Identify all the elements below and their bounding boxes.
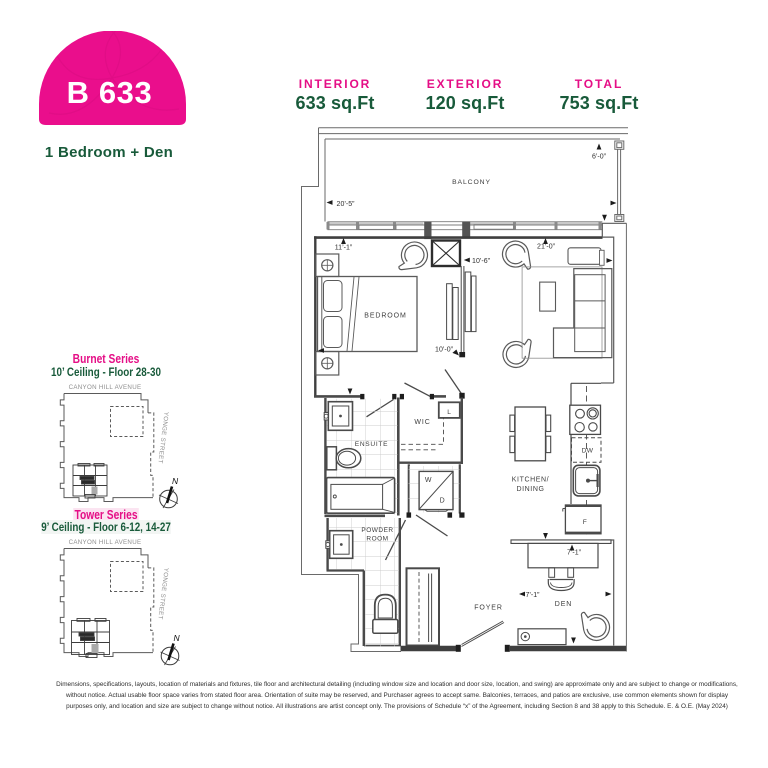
svg-text:CANYON HILL AVENUE: CANYON HILL AVENUE bbox=[69, 384, 142, 391]
svg-text:WIC: WIC bbox=[414, 419, 430, 426]
svg-text:DINING: DINING bbox=[516, 486, 544, 493]
svg-text:N: N bbox=[174, 633, 181, 643]
svg-text:B 633: B 633 bbox=[67, 75, 153, 110]
svg-text:KITCHEN/: KITCHEN/ bbox=[512, 477, 549, 484]
svg-text:ROOM: ROOM bbox=[366, 536, 388, 543]
svg-text:W: W bbox=[425, 477, 432, 484]
svg-text:6’-0”: 6’-0” bbox=[592, 154, 607, 161]
svg-text:10’-0”: 10’-0” bbox=[435, 347, 454, 354]
svg-text:YONGE STREET: YONGE STREET bbox=[156, 411, 169, 464]
svg-text:CANYON HILL AVENUE: CANYON HILL AVENUE bbox=[69, 539, 142, 546]
svg-text:21’-0”: 21’-0” bbox=[537, 244, 556, 251]
svg-text:20’-5”: 20’-5” bbox=[337, 201, 356, 208]
svg-text:POWDER: POWDER bbox=[361, 527, 393, 534]
svg-text:L: L bbox=[447, 409, 451, 416]
svg-text:BEDROOM: BEDROOM bbox=[364, 313, 406, 320]
svg-text:DEN: DEN bbox=[555, 601, 572, 608]
svg-text:YONGE STREET: YONGE STREET bbox=[156, 567, 169, 620]
svg-text:DW: DW bbox=[582, 448, 594, 455]
svg-text:N: N bbox=[172, 476, 179, 486]
svg-text:7’-1”: 7’-1” bbox=[567, 550, 582, 557]
svg-text:10’-6”: 10’-6” bbox=[472, 258, 491, 265]
svg-text:F: F bbox=[583, 519, 587, 526]
svg-text:FOYER: FOYER bbox=[474, 605, 503, 612]
svg-text:D: D bbox=[440, 498, 445, 505]
svg-text:7’-1”: 7’-1” bbox=[525, 592, 540, 599]
svg-text:BALCONY: BALCONY bbox=[452, 179, 491, 186]
svg-text:ENSUITE: ENSUITE bbox=[355, 441, 388, 448]
svg-text:11’-1”: 11’-1” bbox=[335, 245, 353, 252]
